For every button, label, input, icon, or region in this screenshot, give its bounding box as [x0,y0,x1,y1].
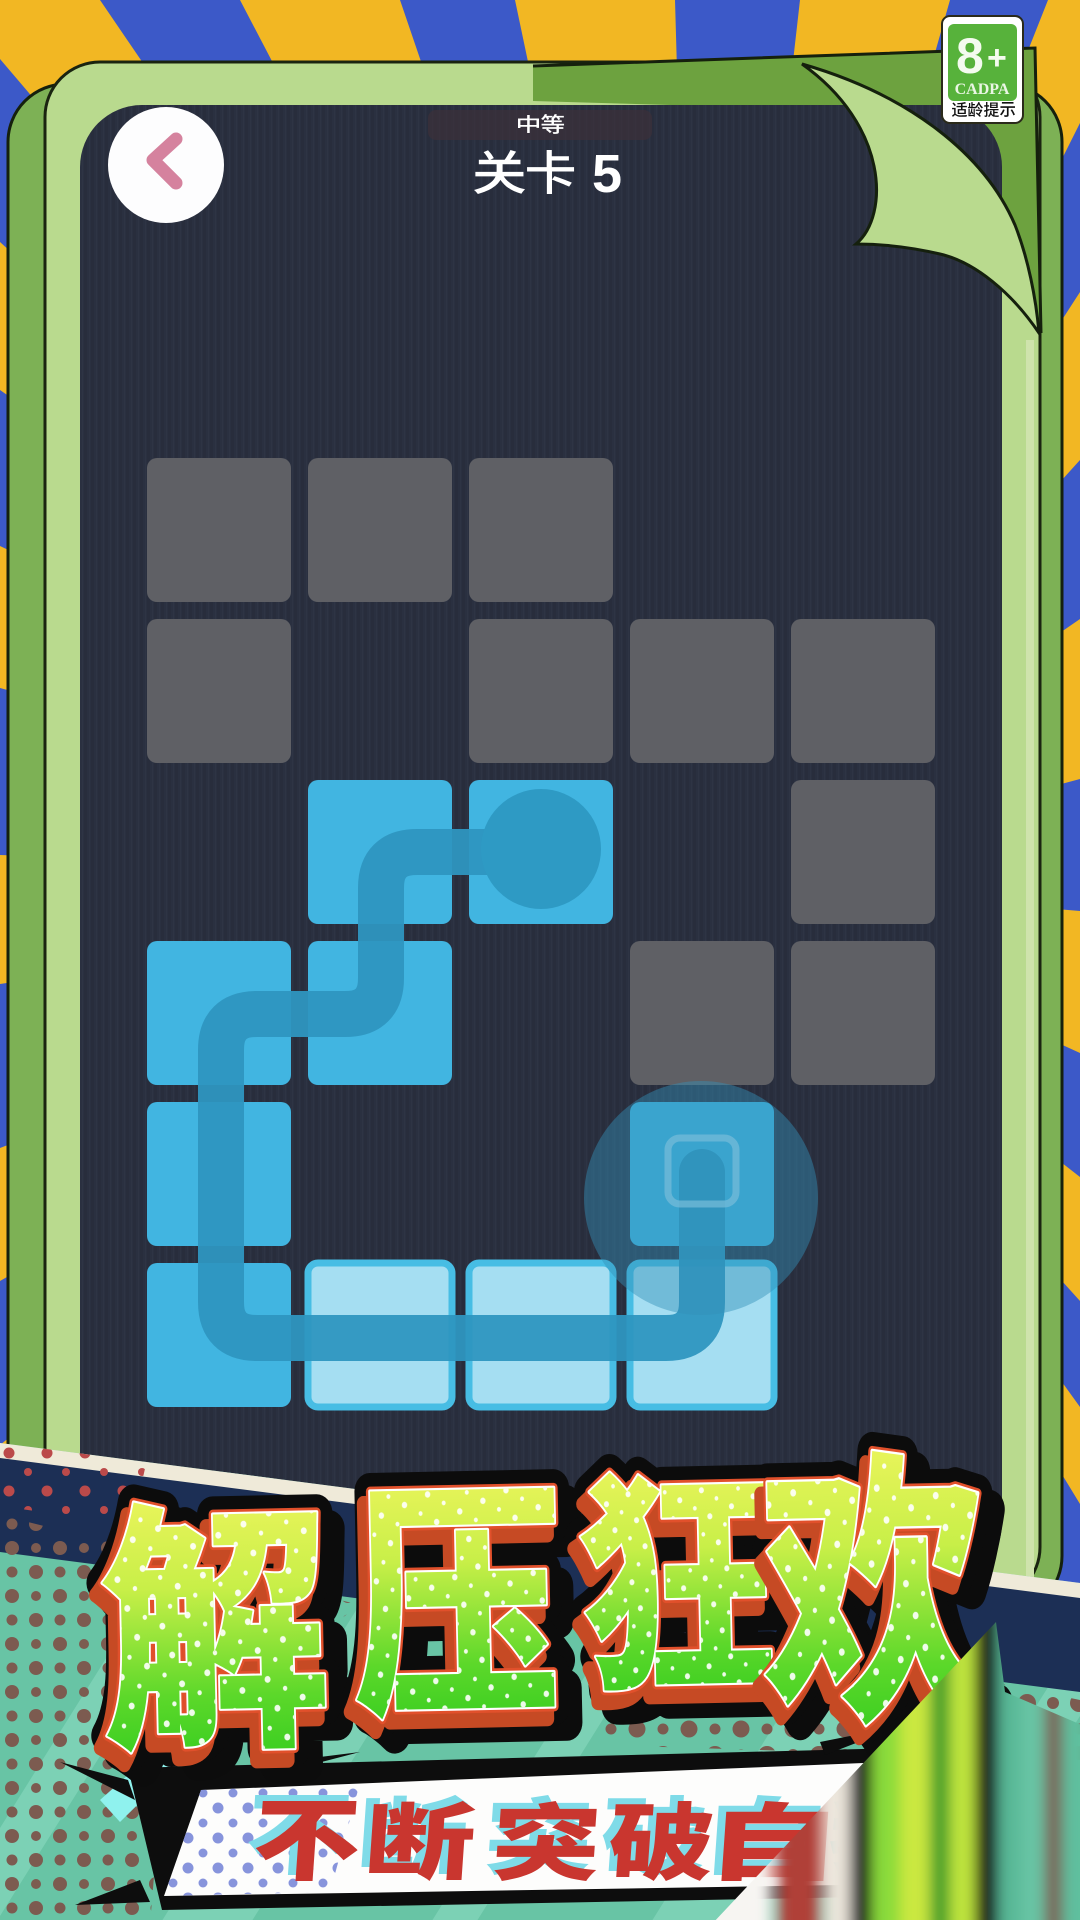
svg-text:CADPA: CADPA [955,81,1010,98]
svg-text:5: 5 [592,144,622,204]
svg-text:+: + [987,39,1007,77]
svg-text:8: 8 [956,28,984,84]
